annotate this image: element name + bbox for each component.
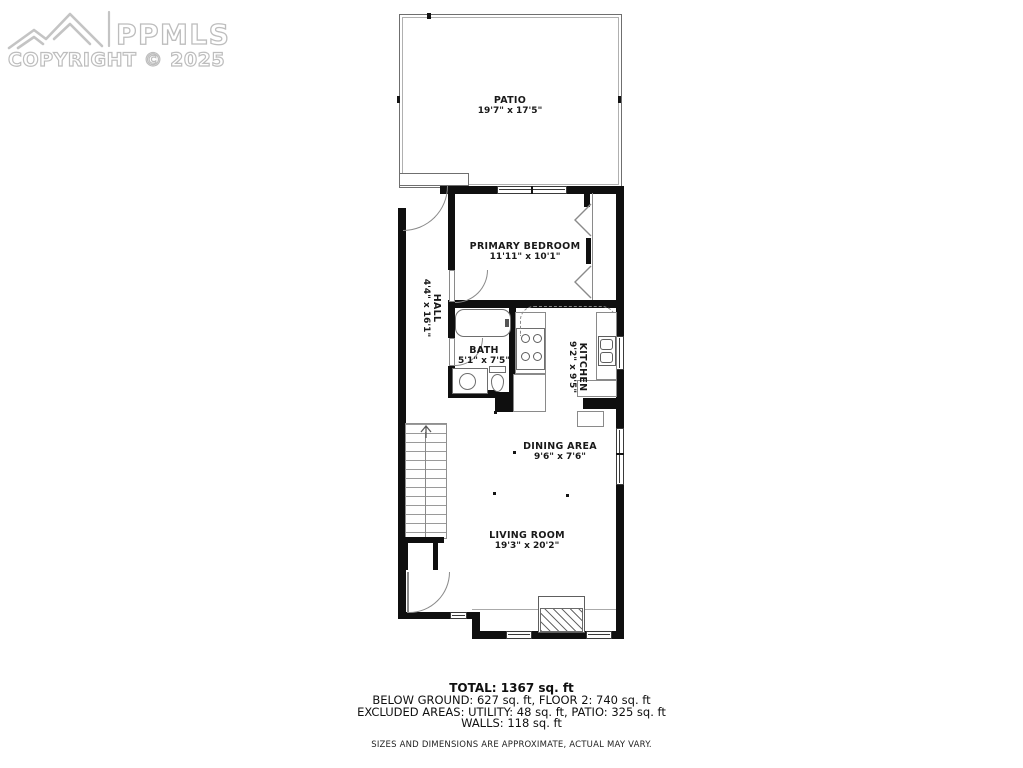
room-name: DINING AREA <box>523 441 597 452</box>
room-dims: 5'1" x 7'5" <box>458 356 510 367</box>
room-dims: 9'6" x 7'6" <box>523 452 597 463</box>
door-swing-arc <box>409 572 450 613</box>
tick-mark <box>397 96 400 103</box>
fixture-dot <box>566 494 569 497</box>
patio-step <box>399 173 469 186</box>
door-swing-arc <box>455 270 488 303</box>
toilet-tank <box>489 366 506 373</box>
kitchen-counter-return <box>513 374 546 412</box>
wall-segment <box>616 186 624 336</box>
stove-burner <box>521 352 530 361</box>
window-mullion <box>531 186 533 194</box>
hearth-line <box>585 609 616 610</box>
stove-burner <box>533 352 542 361</box>
stair-rail-line <box>425 432 426 538</box>
sink-basin <box>459 373 476 390</box>
room-name: PATIO <box>478 95 543 106</box>
area-summary: TOTAL: 1367 sq. ft BELOW GROUND: 627 sq.… <box>0 682 1023 750</box>
room-label-primary-bedroom: PRIMARY BEDROOM 11'11" x 10'1" <box>470 241 581 263</box>
room-dims: 4'4" x 16'1" <box>420 279 431 337</box>
window <box>616 428 624 485</box>
window <box>616 336 624 370</box>
wall-segment <box>448 190 455 270</box>
closet-wall <box>403 543 408 570</box>
kitchen-sink-basin <box>600 339 613 350</box>
room-name: HALL <box>431 279 442 337</box>
room-name: BATH <box>458 345 510 356</box>
room-name: KITCHEN <box>577 341 588 393</box>
toilet-bowl <box>491 374 504 392</box>
summary-walls: WALLS: 118 sq. ft <box>0 718 1023 730</box>
window <box>506 631 532 639</box>
fixture-dot <box>494 411 497 414</box>
fireplace-hatch <box>540 608 583 632</box>
tick-mark <box>618 96 621 103</box>
floor-plan: PATIO 19'7" x 17'5" PRIMARY BEDROOM 11'1… <box>0 0 1023 768</box>
wall-segment <box>612 631 624 639</box>
room-label-hall: HALL 4'4" x 16'1" <box>420 279 442 337</box>
window <box>586 631 612 639</box>
window-mullion <box>616 453 624 455</box>
room-label-patio: PATIO 19'7" x 17'5" <box>478 95 543 117</box>
wall-segment <box>495 392 515 412</box>
bathtub <box>455 309 511 337</box>
summary-disclaimer: SIZES AND DIMENSIONS ARE APPROXIMATE, AC… <box>0 740 1023 750</box>
room-dims: 19'7" x 17'5" <box>478 106 543 117</box>
room-label-kitchen: KITCHEN 9'2" x 9'5" <box>566 341 588 393</box>
room-dims: 11'11" x 10'1" <box>470 252 581 263</box>
room-label-living: LIVING ROOM 19'3" x 20'2" <box>489 530 565 552</box>
closet-wall <box>433 543 438 570</box>
room-label-dining: DINING AREA 9'6" x 7'6" <box>523 441 597 463</box>
room-name: PRIMARY BEDROOM <box>470 241 581 252</box>
room-name: LIVING ROOM <box>489 530 565 541</box>
staircase <box>405 423 447 539</box>
wall-segment <box>472 631 506 639</box>
tub-faucet <box>505 319 509 327</box>
wall-segment <box>398 612 450 619</box>
window <box>450 612 467 619</box>
wall-segment <box>583 398 618 409</box>
fixture-dot <box>493 492 496 495</box>
room-label-bath: BATH 5'1" x 7'5" <box>458 345 510 367</box>
hearth-line <box>472 609 538 610</box>
wall-segment <box>616 485 624 639</box>
floorplan-page: { "watermark": { "brand": "PPMLS", "copy… <box>0 0 1023 768</box>
kitchen-sink-basin <box>600 352 613 363</box>
pantry-cabinet <box>577 411 604 427</box>
tick-mark <box>427 13 431 19</box>
room-dims: 9'2" x 9'5" <box>566 341 577 393</box>
fixture-dot <box>513 451 516 454</box>
up-arrow-icon <box>419 424 433 440</box>
room-dims: 19'3" x 20'2" <box>489 541 565 552</box>
door-swing-arc <box>403 186 448 231</box>
